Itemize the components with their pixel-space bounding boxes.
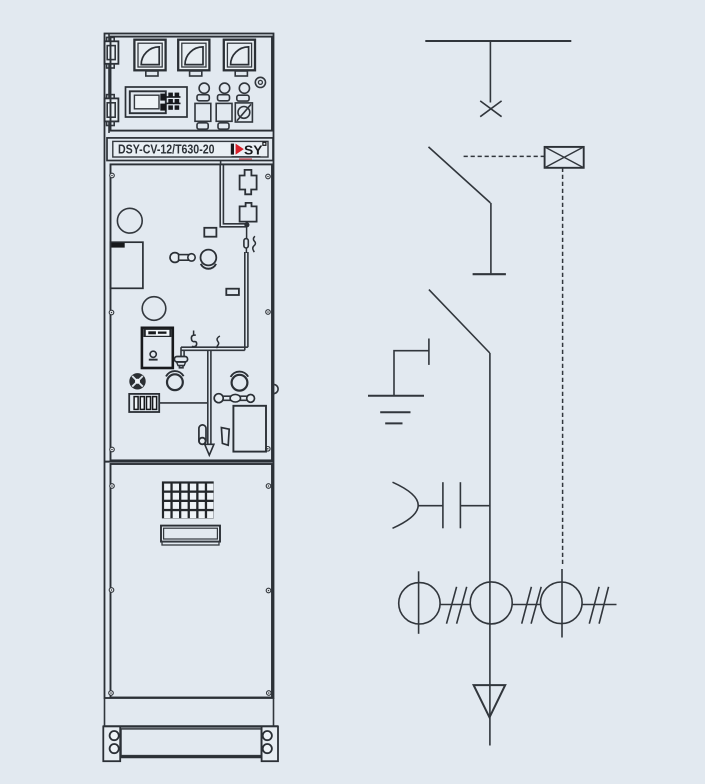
svg-text:SY: SY bbox=[244, 143, 263, 158]
svg-text:DSY-CV-12/T630-20: DSY-CV-12/T630-20 bbox=[118, 142, 215, 157]
